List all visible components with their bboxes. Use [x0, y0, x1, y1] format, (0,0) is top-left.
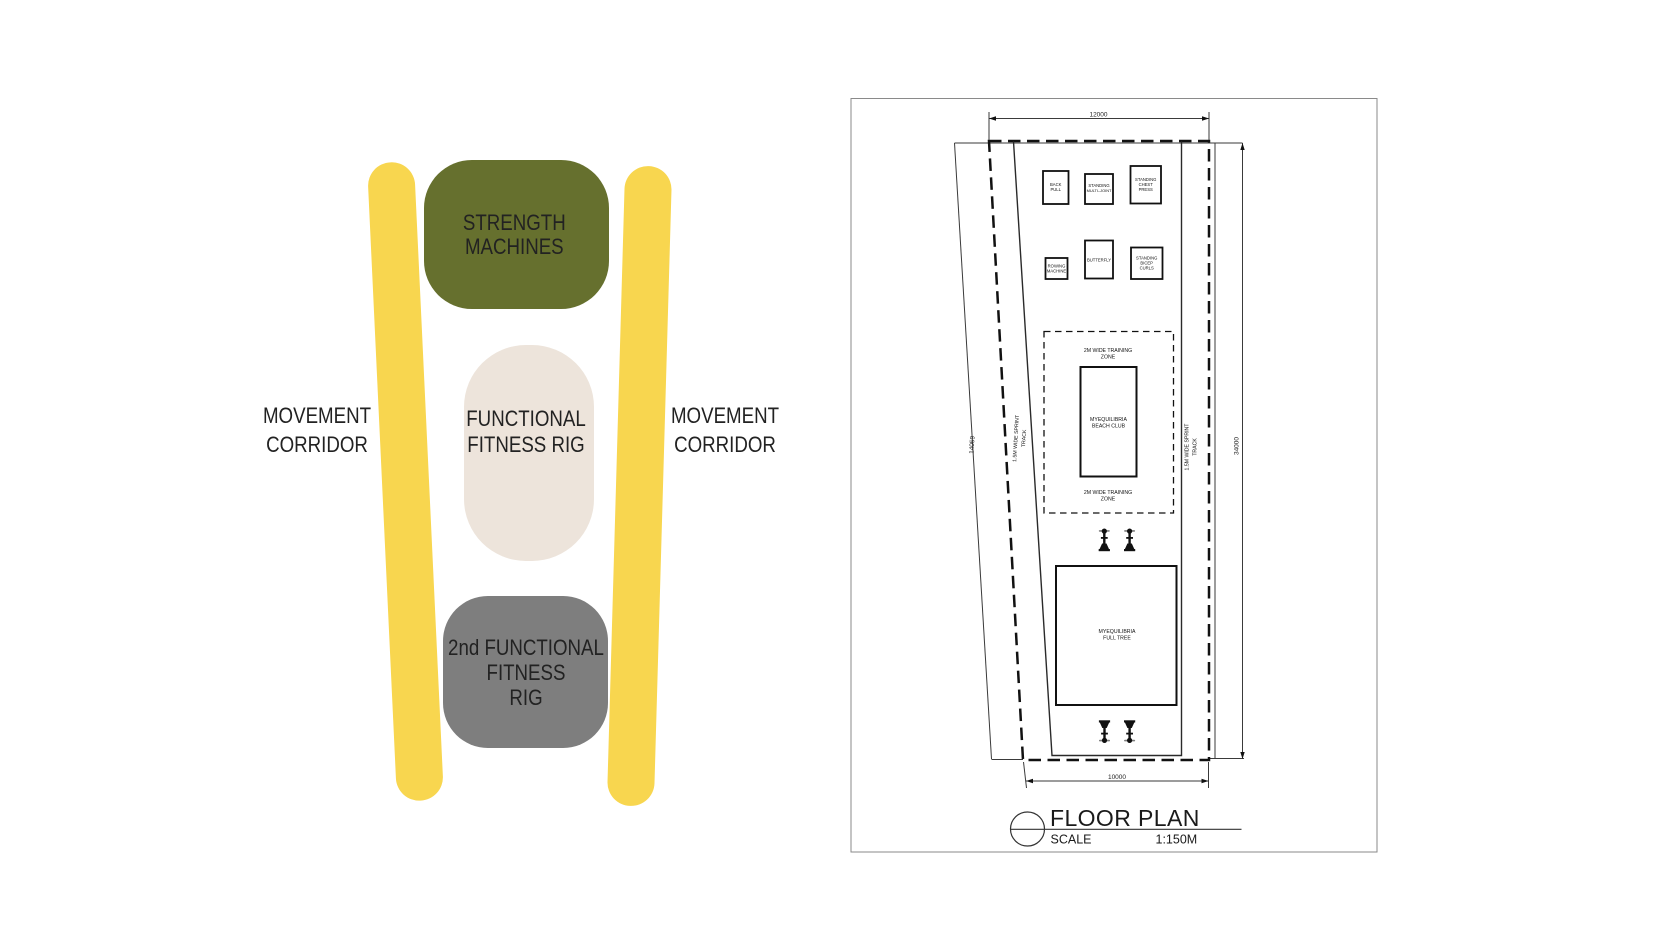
- svg-text:2M WIDE TRAINING: 2M WIDE TRAINING: [1084, 348, 1132, 354]
- svg-text:TRACK: TRACK: [1021, 429, 1028, 447]
- svg-text:12000: 12000: [1089, 112, 1107, 119]
- svg-text:34000: 34000: [1234, 437, 1241, 455]
- svg-text:10000: 10000: [1108, 774, 1126, 781]
- svg-text:1.5M WIDE SPRINT: 1.5M WIDE SPRINT: [1185, 423, 1191, 471]
- svg-text:MULTI–JOINT: MULTI–JOINT: [1087, 188, 1112, 193]
- svg-text:14059: 14059: [968, 435, 976, 454]
- svg-text:ZONE: ZONE: [1101, 497, 1116, 503]
- svg-text:PULL: PULL: [1050, 187, 1061, 192]
- svg-text:PRESS: PRESS: [1139, 187, 1153, 192]
- svg-text:SCALE: SCALE: [1051, 833, 1092, 847]
- svg-text:BEACH CLUB: BEACH CLUB: [1092, 424, 1126, 430]
- svg-text:BUTTERFLY: BUTTERFLY: [1087, 258, 1111, 263]
- svg-text:1:150M: 1:150M: [1156, 833, 1198, 847]
- svg-text:MYEQUILIBRIA: MYEQUILIBRIA: [1090, 417, 1127, 423]
- svg-text:2M WIDE TRAINING: 2M WIDE TRAINING: [1084, 490, 1132, 496]
- svg-text:FLOOR PLAN: FLOOR PLAN: [1050, 805, 1200, 831]
- svg-text:ZONE: ZONE: [1101, 355, 1116, 361]
- svg-text:1.5M WIDE SPRINT: 1.5M WIDE SPRINT: [1012, 414, 1021, 462]
- svg-text:MYEQUILIBRIA: MYEQUILIBRIA: [1099, 629, 1136, 635]
- svg-text:MACHINE: MACHINE: [1047, 269, 1067, 274]
- svg-text:CURLS: CURLS: [1140, 266, 1154, 271]
- svg-text:FULL TREE: FULL TREE: [1103, 636, 1131, 642]
- svg-text:TRACK: TRACK: [1192, 438, 1198, 456]
